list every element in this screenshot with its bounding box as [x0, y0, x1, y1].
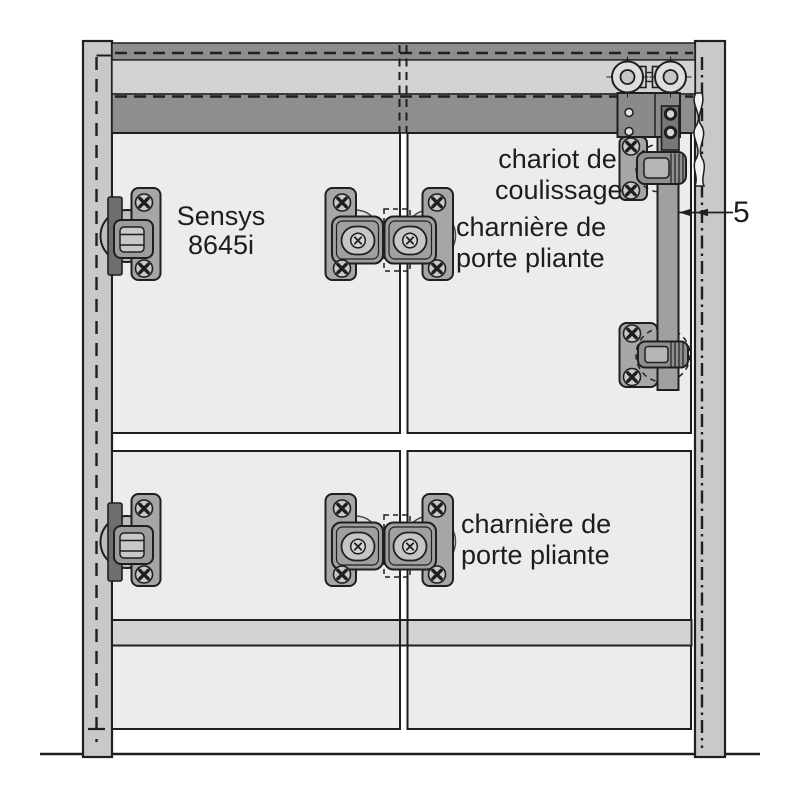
- label-hinge-model-line2: 8645i: [168, 231, 274, 260]
- folding-door-diagram: [0, 0, 800, 800]
- label-item-number-5: 5: [733, 198, 750, 228]
- top-rail: [112, 43, 695, 133]
- wall-hinge-top: [101, 188, 161, 280]
- label-folding-hinge-bottom-line1: charnière de: [461, 509, 611, 540]
- left-post: [83, 41, 113, 757]
- label-hinge-model: Sensys 8645i: [168, 202, 274, 260]
- label-folding-hinge-bottom-line2: porte pliante: [461, 540, 611, 571]
- bottom-rail: [112, 619, 692, 647]
- label-carriage-line2: coulissage: [495, 175, 620, 206]
- door-panel-bottom-right: [408, 451, 692, 729]
- bar-cup-top: [637, 152, 686, 184]
- label-carriage: chariot de coulissage: [495, 144, 620, 206]
- wall-hinge-bottom: [101, 494, 161, 586]
- bar-cup-bottom: [638, 342, 688, 368]
- door-panel-bottom-left: [112, 451, 400, 729]
- diagram-canvas: Sensys 8645i chariot de coulissage charn…: [0, 0, 800, 800]
- label-folding-hinge-top: charnière de porte pliante: [456, 212, 606, 274]
- label-item-number-text: 5: [733, 198, 750, 228]
- label-folding-hinge-top-line1: charnière de: [456, 212, 606, 243]
- label-folding-hinge-bottom: charnière de porte pliante: [461, 509, 611, 571]
- door-panel-top-left: [112, 133, 400, 433]
- label-hinge-model-line1: Sensys: [168, 202, 274, 231]
- label-folding-hinge-top-line2: porte pliante: [456, 243, 606, 274]
- label-carriage-line1: chariot de: [495, 144, 620, 175]
